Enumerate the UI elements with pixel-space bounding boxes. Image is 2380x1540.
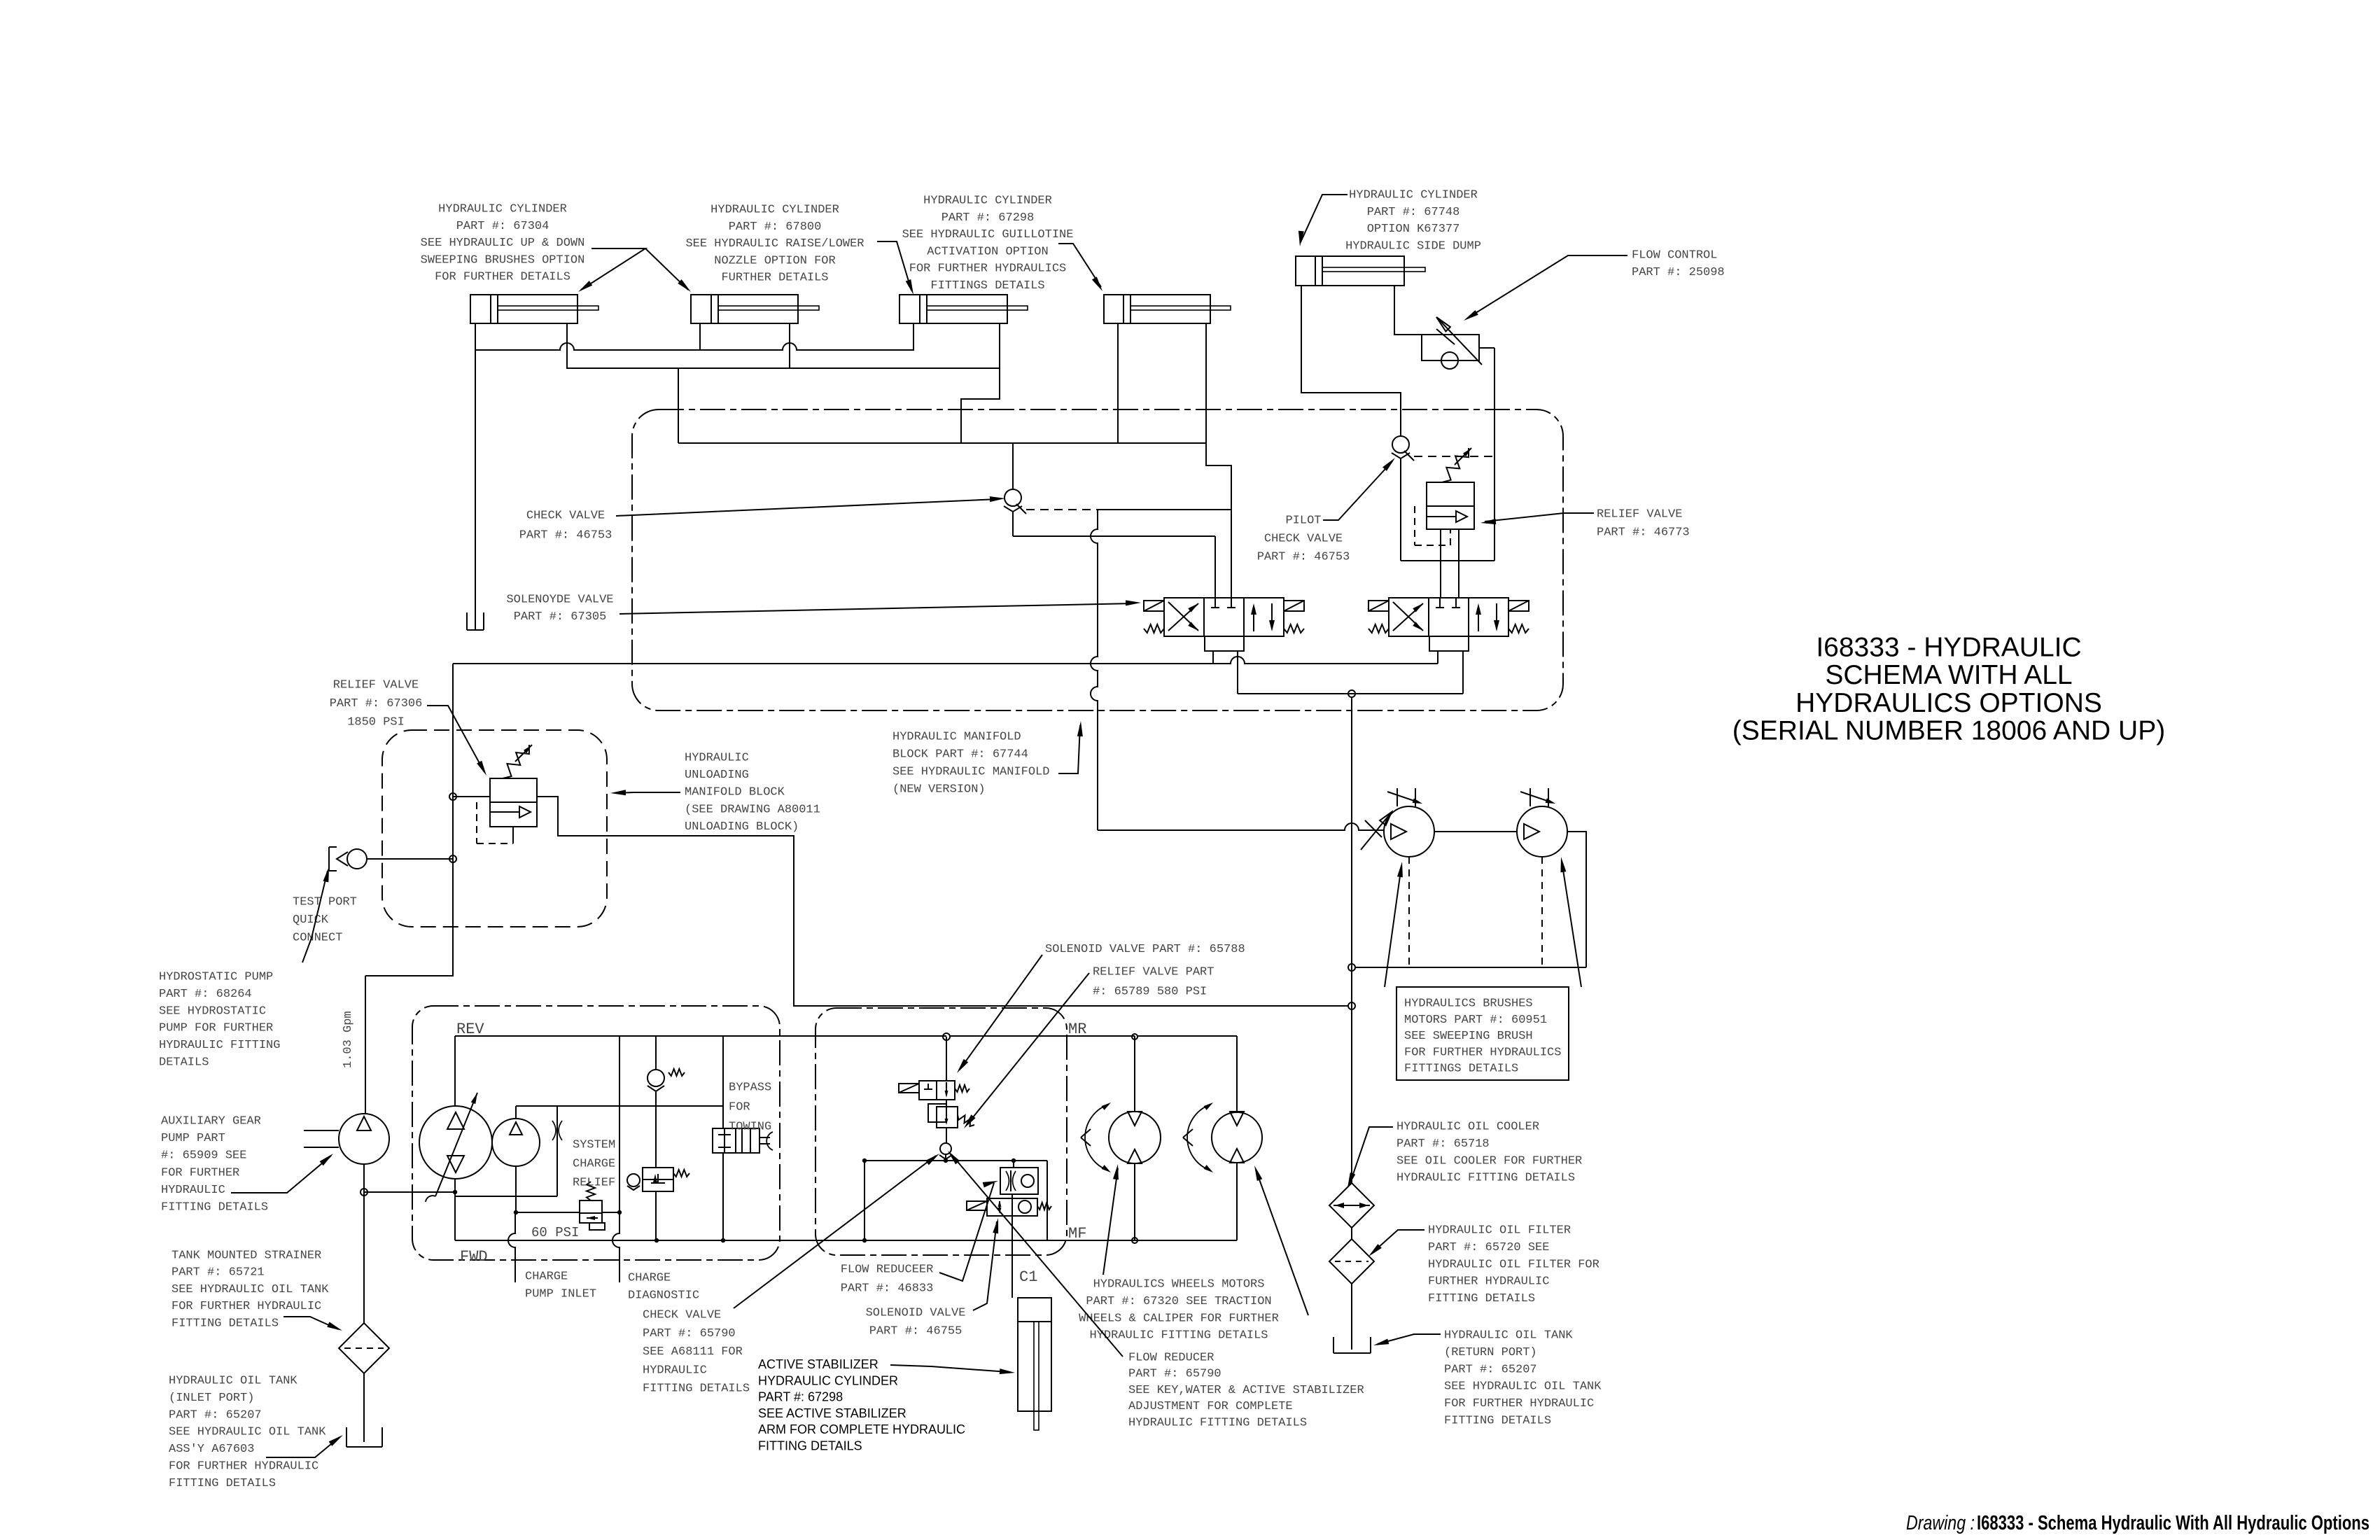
svg-text:(INLET PORT): (INLET PORT) bbox=[169, 1392, 254, 1405]
svg-text:ARM FOR COMPLETE HYDRAULIC: ARM FOR COMPLETE HYDRAULIC bbox=[758, 1422, 965, 1436]
svg-text:PART #: 67800: PART #: 67800 bbox=[729, 220, 822, 234]
svg-text:HYDRAULIC CYLINDER: HYDRAULIC CYLINDER bbox=[758, 1373, 898, 1387]
svg-text:PART #: 46773: PART #: 46773 bbox=[1597, 526, 1690, 540]
svg-text:PART #: 67298: PART #: 67298 bbox=[941, 211, 1035, 225]
svg-text:FITTING DETAILS: FITTING DETAILS bbox=[169, 1477, 276, 1490]
svg-text:SEE OIL COOLER FOR FURTHER: SEE OIL COOLER FOR FURTHER bbox=[1396, 1154, 1582, 1168]
svg-text:HYDRAULICS OPTIONS: HYDRAULICS OPTIONS bbox=[1795, 688, 2102, 718]
svg-text:PART #: 65720 SEE: PART #: 65720 SEE bbox=[1428, 1241, 1549, 1254]
svg-text:SOLENOID VALVE: SOLENOID VALVE bbox=[866, 1307, 966, 1320]
svg-text:TEST PORT: TEST PORT bbox=[293, 896, 357, 909]
svg-text:ACTIVE STABILIZER: ACTIVE STABILIZER bbox=[758, 1357, 878, 1371]
svg-text:HYDRAULIC FITTING DETAILS: HYDRAULIC FITTING DETAILS bbox=[1089, 1329, 1268, 1343]
svg-text:SOLENOYDE VALVE: SOLENOYDE VALVE bbox=[506, 594, 613, 607]
svg-text:NOZZLE OPTION FOR: NOZZLE OPTION FOR bbox=[714, 254, 835, 267]
svg-text:RELIEF VALVE: RELIEF VALVE bbox=[1597, 508, 1682, 521]
svg-text:HYDRAULIC OIL TANK: HYDRAULIC OIL TANK bbox=[1444, 1329, 1573, 1343]
svg-text:BYPASS: BYPASS bbox=[729, 1081, 771, 1095]
svg-text:CHARGE: CHARGE bbox=[573, 1158, 615, 1171]
svg-text:PUMP FOR FURTHER: PUMP FOR FURTHER bbox=[159, 1022, 273, 1035]
svg-text:PART #: 67305: PART #: 67305 bbox=[514, 610, 607, 624]
svg-text:UNLOADING BLOCK): UNLOADING BLOCK) bbox=[685, 820, 799, 834]
svg-text:#: 65909 SEE: #: 65909 SEE bbox=[161, 1149, 246, 1163]
svg-text:SEE HYDRAULIC OIL TANK: SEE HYDRAULIC OIL TANK bbox=[169, 1426, 326, 1439]
svg-text:60 PSI: 60 PSI bbox=[531, 1225, 579, 1240]
svg-text:CONNECT: CONNECT bbox=[293, 932, 342, 945]
svg-text:PART #: 67748: PART #: 67748 bbox=[1367, 206, 1460, 219]
svg-text:HYDRAULIC CYLINDER: HYDRAULIC CYLINDER bbox=[710, 204, 839, 217]
svg-text:FLOW REDUCER: FLOW REDUCER bbox=[1128, 1352, 1214, 1365]
svg-text:Drawing :: Drawing : bbox=[1906, 1512, 1975, 1534]
svg-text:PILOT: PILOT bbox=[1285, 514, 1321, 528]
svg-text:PART #: 67306: PART #: 67306 bbox=[330, 697, 423, 710]
svg-text:RELIEF VALVE: RELIEF VALVE bbox=[333, 679, 419, 692]
svg-text:FWD: FWD bbox=[460, 1248, 488, 1266]
svg-text:UNLOADING: UNLOADING bbox=[685, 769, 749, 782]
svg-text:HYDRAULIC OIL TANK: HYDRAULIC OIL TANK bbox=[169, 1375, 297, 1388]
svg-text:CHECK VALVE: CHECK VALVE bbox=[643, 1309, 721, 1322]
svg-text:HYDROSTATIC PUMP: HYDROSTATIC PUMP bbox=[159, 971, 273, 984]
svg-text:PART #: 46833: PART #: 46833 bbox=[841, 1282, 934, 1296]
svg-text:ACTIVATION OPTION: ACTIVATION OPTION bbox=[927, 245, 1048, 258]
svg-text:FOR FURTHER HYDRAULIC: FOR FURTHER HYDRAULIC bbox=[171, 1300, 321, 1313]
svg-text:FLOW CONTROL: FLOW CONTROL bbox=[1632, 249, 1717, 262]
svg-text:HYDRAULIC FITTING: HYDRAULIC FITTING bbox=[159, 1039, 280, 1052]
svg-text:FOR FURTHER HYDRAULICS: FOR FURTHER HYDRAULICS bbox=[909, 262, 1066, 276]
svg-text:PART #: 46753: PART #: 46753 bbox=[1257, 551, 1350, 564]
svg-text:HYDRAULIC: HYDRAULIC bbox=[643, 1364, 707, 1377]
svg-text:FOR FURTHER: FOR FURTHER bbox=[161, 1166, 239, 1179]
svg-text:1.03 Gpm: 1.03 Gpm bbox=[342, 1011, 355, 1068]
svg-text:SYSTEM: SYSTEM bbox=[573, 1139, 615, 1152]
svg-text:HYDRAULIC OIL FILTER FOR: HYDRAULIC OIL FILTER FOR bbox=[1428, 1258, 1599, 1271]
svg-text:CHECK VALVE: CHECK VALVE bbox=[1264, 533, 1343, 546]
svg-text:PART #: 67320 SEE TRACTION: PART #: 67320 SEE TRACTION bbox=[1086, 1295, 1271, 1308]
svg-text:HYDRAULIC FITTING DETAILS: HYDRAULIC FITTING DETAILS bbox=[1396, 1172, 1575, 1185]
svg-text:(SEE DRAWING A80011: (SEE DRAWING A80011 bbox=[685, 803, 820, 816]
svg-text:CHARGE: CHARGE bbox=[628, 1272, 671, 1285]
svg-text:HYDRAULIC FITTING DETAILS: HYDRAULIC FITTING DETAILS bbox=[1128, 1416, 1307, 1429]
svg-text:HYDRAULICS BRUSHES: HYDRAULICS BRUSHES bbox=[1404, 997, 1533, 1011]
svg-text:FITTING DETAILS: FITTING DETAILS bbox=[1428, 1292, 1535, 1305]
svg-text:FOR FURTHER HYDRAULICS: FOR FURTHER HYDRAULICS bbox=[1404, 1046, 1561, 1059]
svg-text:FOR FURTHER HYDRAULIC: FOR FURTHER HYDRAULIC bbox=[169, 1460, 318, 1473]
svg-text:PART #: 65790: PART #: 65790 bbox=[1128, 1368, 1221, 1381]
svg-text:PUMP INLET: PUMP INLET bbox=[525, 1288, 596, 1301]
svg-text:FURTHER HYDRAULIC: FURTHER HYDRAULIC bbox=[1428, 1275, 1549, 1289]
svg-text:PART #: 46753: PART #: 46753 bbox=[519, 529, 612, 542]
svg-text:SWEEPING BRUSHES OPTION: SWEEPING BRUSHES OPTION bbox=[421, 253, 585, 267]
svg-text:SEE ACTIVE STABILIZER: SEE ACTIVE STABILIZER bbox=[758, 1406, 906, 1420]
svg-text:FOR FURTHER HYDRAULIC: FOR FURTHER HYDRAULIC bbox=[1444, 1397, 1594, 1410]
svg-text:BLOCK PART #: 67744: BLOCK PART #: 67744 bbox=[892, 748, 1028, 762]
svg-text:HYDRAULIC OIL FILTER: HYDRAULIC OIL FILTER bbox=[1428, 1224, 1571, 1238]
svg-text:SEE SWEEPING BRUSH: SEE SWEEPING BRUSH bbox=[1404, 1030, 1533, 1043]
svg-text:DIAGNOSTIC: DIAGNOSTIC bbox=[628, 1289, 699, 1303]
svg-text:FITTING DETAILS: FITTING DETAILS bbox=[1444, 1415, 1551, 1428]
svg-text:SEE HYDRAULIC MANIFOLD: SEE HYDRAULIC MANIFOLD bbox=[892, 766, 1049, 779]
svg-text:(NEW VERSION): (NEW VERSION) bbox=[892, 783, 986, 797]
svg-text:FITTING DETAILS: FITTING DETAILS bbox=[643, 1382, 750, 1396]
svg-text:MANIFOLD BLOCK: MANIFOLD BLOCK bbox=[685, 786, 785, 799]
svg-text:HYDRAULIC CYLINDER: HYDRAULIC CYLINDER bbox=[438, 203, 567, 216]
svg-text:PUMP PART: PUMP PART bbox=[161, 1132, 225, 1145]
svg-text:HYDRAULIC: HYDRAULIC bbox=[161, 1184, 225, 1197]
svg-text:HYDRAULIC SIDE DUMP: HYDRAULIC SIDE DUMP bbox=[1345, 239, 1481, 253]
svg-text:DETAILS: DETAILS bbox=[159, 1056, 209, 1070]
svg-text:HYDRAULIC MANIFOLD: HYDRAULIC MANIFOLD bbox=[892, 731, 1021, 744]
svg-text:C1: C1 bbox=[1019, 1268, 1037, 1286]
svg-text:FITTING DETAILS: FITTING DETAILS bbox=[171, 1317, 279, 1330]
svg-text:FOR FURTHER DETAILS: FOR FURTHER DETAILS bbox=[435, 271, 570, 284]
svg-text:HYDRAULIC: HYDRAULIC bbox=[685, 752, 749, 765]
svg-text:MOTORS PART #: 60951: MOTORS PART #: 60951 bbox=[1404, 1014, 1547, 1027]
svg-text:FITTINGS DETAILS: FITTINGS DETAILS bbox=[1404, 1063, 1518, 1076]
svg-text:SEE HYDRAULIC GUILLOTINE: SEE HYDRAULIC GUILLOTINE bbox=[902, 228, 1074, 241]
svg-text:PART #: 65207: PART #: 65207 bbox=[1444, 1363, 1537, 1376]
svg-text:HYDRAULIC OIL COOLER: HYDRAULIC OIL COOLER bbox=[1396, 1121, 1539, 1134]
svg-text:SCHEMA WITH ALL: SCHEMA WITH ALL bbox=[1825, 660, 2072, 690]
svg-text:SOLENOID VALVE PART #: 65788: SOLENOID VALVE PART #: 65788 bbox=[1045, 943, 1245, 956]
svg-text:SEE HYDRAULIC OIL TANK: SEE HYDRAULIC OIL TANK bbox=[171, 1283, 329, 1296]
svg-text:CHECK VALVE: CHECK VALVE bbox=[526, 510, 605, 523]
svg-text:HYDRAULIC CYLINDER: HYDRAULIC CYLINDER bbox=[923, 195, 1052, 208]
svg-text:TANK MOUNTED STRAINER: TANK MOUNTED STRAINER bbox=[171, 1249, 321, 1263]
svg-text:PART #: 67298: PART #: 67298 bbox=[758, 1390, 843, 1404]
svg-text:SEE KEY,WATER & ACTIVE STABILI: SEE KEY,WATER & ACTIVE STABILIZER bbox=[1128, 1384, 1364, 1397]
svg-text:PART #: 65718: PART #: 65718 bbox=[1396, 1137, 1490, 1151]
svg-text:FURTHER DETAILS: FURTHER DETAILS bbox=[721, 272, 828, 285]
svg-text:PART #: 65790: PART #: 65790 bbox=[643, 1327, 736, 1340]
svg-text:PART #: 68264: PART #: 68264 bbox=[159, 988, 252, 1001]
svg-text:FLOW REDUCEER: FLOW REDUCEER bbox=[841, 1263, 934, 1277]
svg-text:SEE HYDRAULIC UP & DOWN: SEE HYDRAULIC UP & DOWN bbox=[421, 237, 585, 250]
svg-text:AUXILIARY GEAR: AUXILIARY GEAR bbox=[161, 1115, 261, 1128]
svg-text:1850 PSI: 1850 PSI bbox=[347, 716, 405, 729]
svg-text:QUICK: QUICK bbox=[293, 913, 329, 927]
svg-text:WHEELS & CALIPER FOR FURTHER: WHEELS & CALIPER FOR FURTHER bbox=[1079, 1312, 1279, 1325]
svg-text:I68333 - HYDRAULIC: I68333 - HYDRAULIC bbox=[1816, 633, 2081, 663]
svg-text:PART #: 67304: PART #: 67304 bbox=[456, 220, 549, 233]
svg-text:CHARGE: CHARGE bbox=[525, 1270, 568, 1284]
svg-text:SEE HYDROSTATIC: SEE HYDROSTATIC bbox=[159, 1004, 266, 1018]
svg-text:OPTION K67377: OPTION K67377 bbox=[1367, 223, 1460, 236]
svg-text:PART #: 65207: PART #: 65207 bbox=[169, 1408, 262, 1422]
svg-text:TOWING: TOWING bbox=[729, 1121, 771, 1134]
svg-text:RELIEF VALVE PART: RELIEF VALVE PART bbox=[1093, 966, 1214, 979]
svg-text:FITTING DETAILS: FITTING DETAILS bbox=[161, 1201, 268, 1214]
svg-text:ASS'Y A67603: ASS'Y A67603 bbox=[169, 1443, 254, 1456]
svg-text:HYDRAULIC CYLINDER: HYDRAULIC CYLINDER bbox=[1349, 189, 1478, 202]
svg-text:SEE A68111 FOR: SEE A68111 FOR bbox=[643, 1345, 743, 1359]
svg-text:SEE HYDRAULIC OIL TANK: SEE HYDRAULIC OIL TANK bbox=[1444, 1380, 1602, 1394]
svg-text:ADJUSTMENT FOR COMPLETE: ADJUSTMENT FOR COMPLETE bbox=[1128, 1400, 1293, 1413]
svg-text:FITTINGS DETAILS: FITTINGS DETAILS bbox=[930, 279, 1044, 293]
svg-text:PART #: 46755: PART #: 46755 bbox=[869, 1325, 962, 1338]
svg-text:RELIEF: RELIEF bbox=[573, 1177, 615, 1190]
svg-text:FITTING DETAILS: FITTING DETAILS bbox=[758, 1439, 862, 1453]
svg-text:#: 65789 580 PSI: #: 65789 580 PSI bbox=[1093, 986, 1207, 999]
svg-text:SEE HYDRAULIC RAISE/LOWER: SEE HYDRAULIC RAISE/LOWER bbox=[685, 237, 864, 251]
svg-text:PART #: 65721: PART #: 65721 bbox=[171, 1266, 265, 1280]
svg-text:(RETURN PORT): (RETURN PORT) bbox=[1444, 1346, 1537, 1359]
svg-text:I68333 - Schema Hydraulic With: I68333 - Schema Hydraulic With All Hydra… bbox=[1977, 1512, 2369, 1534]
svg-text:(SERIAL NUMBER 18006 AND UP): (SERIAL NUMBER 18006 AND UP) bbox=[1732, 716, 2165, 746]
svg-text:MF: MF bbox=[1068, 1225, 1086, 1242]
svg-text:FOR: FOR bbox=[729, 1101, 750, 1114]
svg-text:PART #: 25098: PART #: 25098 bbox=[1632, 266, 1725, 279]
svg-text:HYDRAULICS WHEELS MOTORS: HYDRAULICS WHEELS MOTORS bbox=[1093, 1278, 1265, 1291]
